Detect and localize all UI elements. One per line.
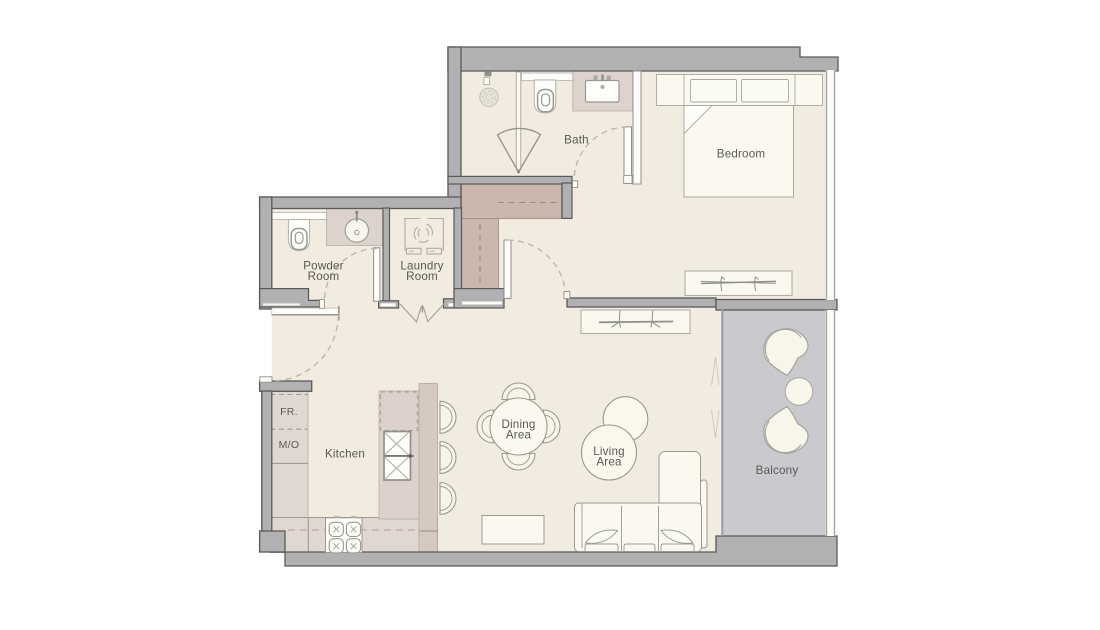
svg-text:Kitchen: Kitchen: [325, 448, 365, 461]
svg-text:M/O: M/O: [279, 439, 300, 451]
svg-text:Room: Room: [406, 270, 438, 283]
svg-text:Area: Area: [506, 429, 532, 442]
svg-text:Area: Area: [596, 456, 622, 469]
svg-text:Bath: Bath: [564, 134, 589, 147]
svg-text:FR.: FR.: [280, 406, 298, 418]
svg-text:Room: Room: [308, 270, 340, 283]
svg-text:Bedroom: Bedroom: [717, 148, 765, 161]
svg-text:Balcony: Balcony: [756, 464, 799, 477]
